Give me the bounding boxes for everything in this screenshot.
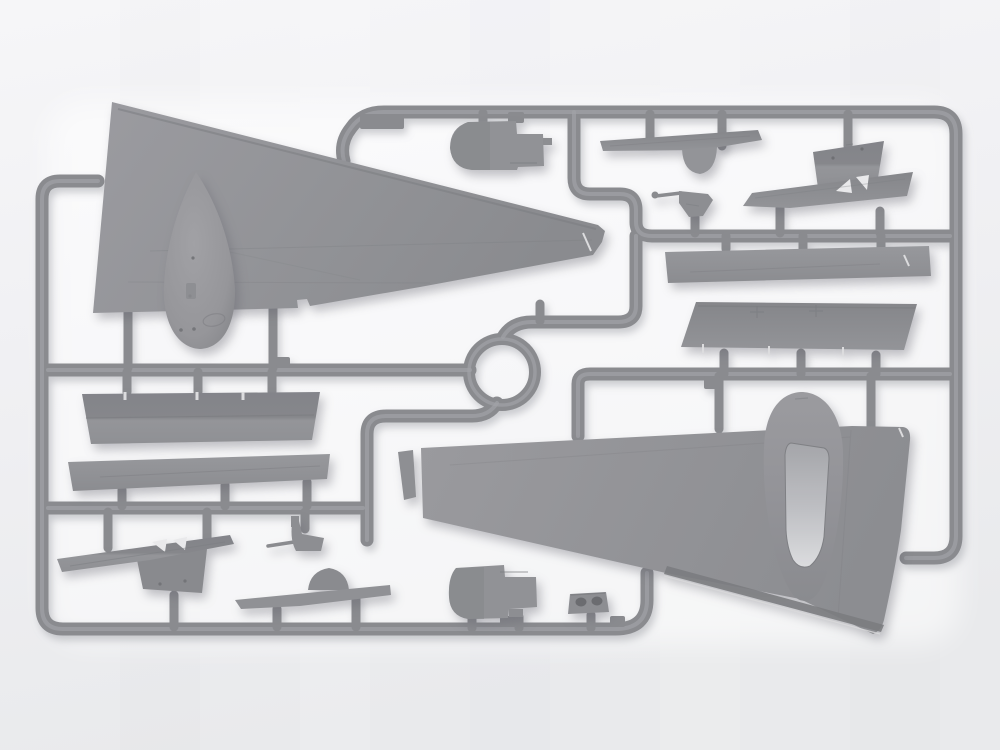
holes-block-part: [568, 592, 609, 614]
sprue-canvas: [0, 0, 1000, 750]
sprue-photo: [0, 0, 1000, 750]
trapezoid-panel-part: [82, 392, 320, 444]
